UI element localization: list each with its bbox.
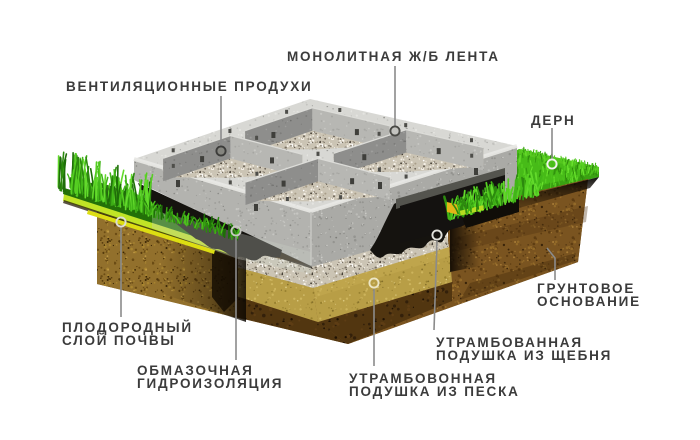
- svg-text:ПОДУШКА ИЗ ЩЕБНЯ: ПОДУШКА ИЗ ЩЕБНЯ: [436, 348, 612, 363]
- svg-text:ПОДУШКА ИЗ ПЕСКА: ПОДУШКА ИЗ ПЕСКА: [349, 384, 520, 399]
- svg-text:ВЕНТИЛЯЦИОННЫЕ ПРОДУХИ: ВЕНТИЛЯЦИОННЫЕ ПРОДУХИ: [66, 79, 313, 94]
- svg-text:МОНОЛИТНАЯ Ж/Б ЛЕНТА: МОНОЛИТНАЯ Ж/Б ЛЕНТА: [287, 49, 500, 64]
- svg-text:СЛОЙ ПОЧВЫ: СЛОЙ ПОЧВЫ: [62, 333, 176, 348]
- svg-text:ОСНОВАНИЕ: ОСНОВАНИЕ: [537, 294, 641, 309]
- svg-text:ГИДРОИЗОЛЯЦИЯ: ГИДРОИЗОЛЯЦИЯ: [137, 376, 283, 391]
- svg-text:ДЕРН: ДЕРН: [531, 113, 576, 128]
